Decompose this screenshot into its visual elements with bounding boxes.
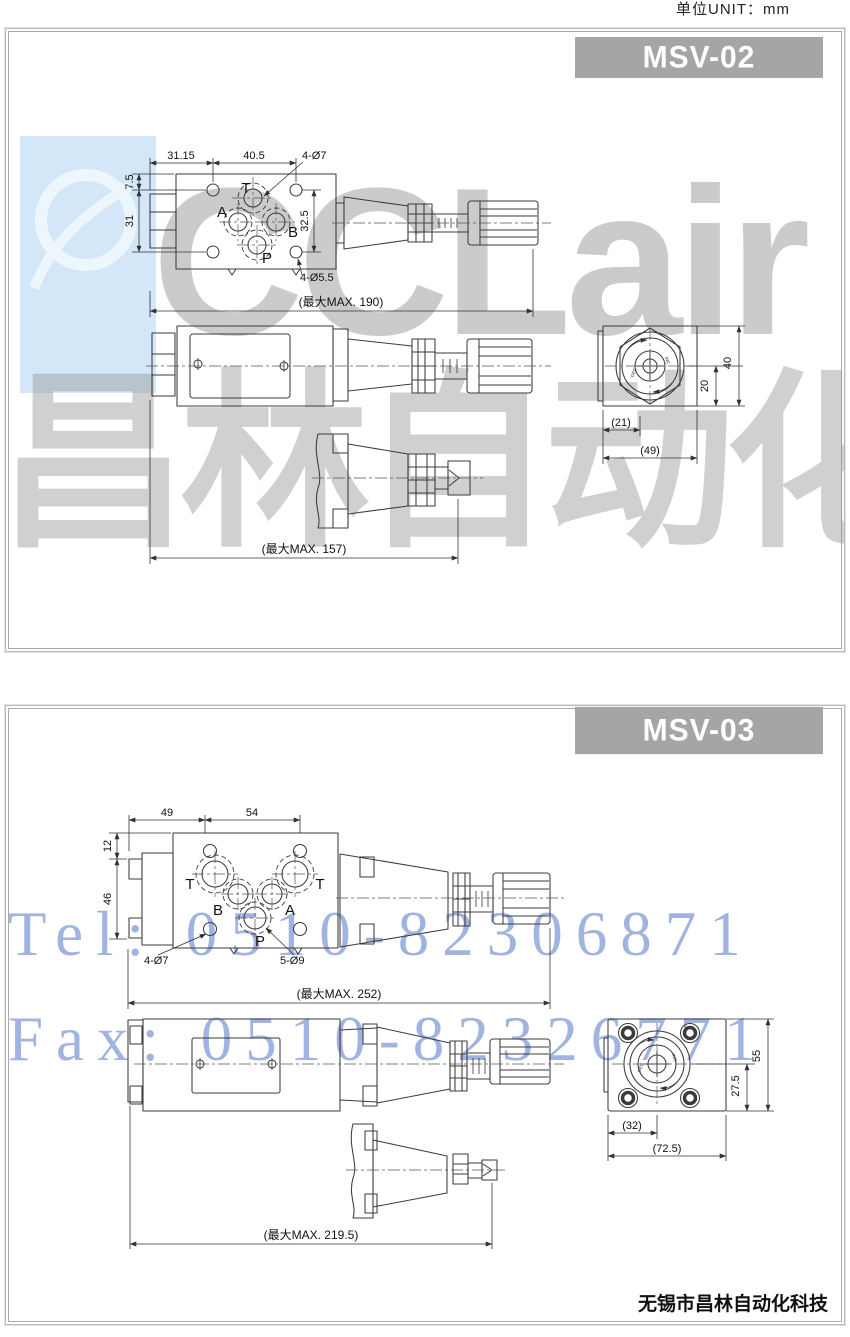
msv02-side-view bbox=[146, 326, 551, 406]
dim-msv02-h2: 31 bbox=[124, 215, 136, 227]
dim-msv02-w1: 31.15 bbox=[167, 150, 195, 162]
panel-msv03: Tel: 0510-82306871 Fax: 0510-82326771 bbox=[5, 705, 845, 1325]
dim-msv02-w2: 40.5 bbox=[243, 150, 264, 162]
unit-label: 单位UNIT：mm bbox=[676, 0, 790, 19]
port-label-b: B bbox=[288, 224, 298, 241]
msv03-top-view: T T B A P 49 54 12 46 4-Ø7 5-Ø bbox=[102, 807, 564, 967]
company-footer: 无锡市昌林自动化科技 bbox=[638, 1289, 828, 1316]
model-banner-msv02: MSV-02 bbox=[575, 37, 823, 78]
dim-msv02-holes-top: 4-Ø7 bbox=[302, 150, 326, 162]
dim-msv02-end-w-half: (21) bbox=[611, 417, 631, 429]
dim-msv02-h1: 7.5 bbox=[124, 174, 136, 189]
dim-msv03-end-w-full: (72.5) bbox=[653, 1143, 682, 1155]
msv02-max-total-dim: (最大MAX. 190) bbox=[150, 249, 533, 317]
port-label-b: B bbox=[213, 902, 223, 919]
dim-msv03-h2: 46 bbox=[102, 893, 114, 905]
dim-msv03-end-h-full: 55 bbox=[751, 1050, 763, 1062]
msv03-end-view: DEC INC 55 27.5 (32) (72.5) bbox=[604, 1019, 774, 1161]
port-label-a: A bbox=[217, 204, 227, 221]
msv03-side-view bbox=[128, 1019, 564, 1111]
dim-msv03-max-handle: (最大MAX. 219.5) bbox=[264, 1228, 359, 1242]
dim-msv02-end-w-full: (49) bbox=[640, 445, 660, 457]
msv03-drawing: T T B A P 49 54 12 46 4-Ø7 5-Ø bbox=[6, 706, 844, 1324]
port-label-t2: T bbox=[315, 876, 324, 893]
dim-msv03-h1: 12 bbox=[102, 840, 114, 852]
dim-msv03-holes-small: 4-Ø7 bbox=[144, 955, 168, 967]
dim-msv02-max-handle: (最大MAX. 157) bbox=[262, 542, 347, 556]
dim-msv02-end-h-half: 20 bbox=[699, 380, 711, 392]
dim-msv03-end-w-half: (32) bbox=[622, 1120, 642, 1132]
msv02-handle-view: (最大MAX. 157) bbox=[150, 400, 483, 564]
dim-msv03-w2: 54 bbox=[246, 807, 258, 819]
port-label-t: T bbox=[241, 180, 250, 197]
dim-msv02-max-total: (最大MAX. 190) bbox=[299, 295, 384, 309]
panel-msv02: CCLair 昌林自动化 bbox=[5, 28, 845, 652]
port-label-t1: T bbox=[185, 876, 194, 893]
dim-msv02-holes-bottom: 4-Ø5.5 bbox=[300, 272, 334, 284]
dim-msv03-holes-large: 5-Ø9 bbox=[280, 955, 304, 967]
port-label-p: P bbox=[262, 250, 272, 267]
msv02-drawing: T A B P 31.15 40.5 4-Ø7 7.5 31 bbox=[6, 29, 844, 651]
knob-label-inc: INC bbox=[671, 1053, 679, 1063]
dim-msv03-max-total: (最大MAX. 252) bbox=[297, 987, 382, 1001]
dim-msv02-end-h-full: 40 bbox=[722, 357, 734, 369]
msv02-end-view: DEC INC 40 20 (21) (49) bbox=[598, 326, 745, 464]
datasheet-page: 单位UNIT：mm CCLair 昌林自动化 bbox=[0, 0, 850, 1337]
msv03-handle-view: (最大MAX. 219.5) bbox=[130, 1106, 508, 1249]
dim-msv03-end-h-half: 27.5 bbox=[730, 1075, 742, 1096]
model-banner-msv03: MSV-03 bbox=[575, 707, 823, 754]
dim-msv03-w1: 49 bbox=[161, 807, 173, 819]
dim-msv02-h3: 32.5 bbox=[299, 210, 311, 231]
msv02-top-view: T A B P 31.15 40.5 4-Ø7 7.5 31 bbox=[124, 150, 551, 284]
port-label-a: A bbox=[285, 902, 295, 919]
port-label-p: P bbox=[255, 933, 265, 950]
